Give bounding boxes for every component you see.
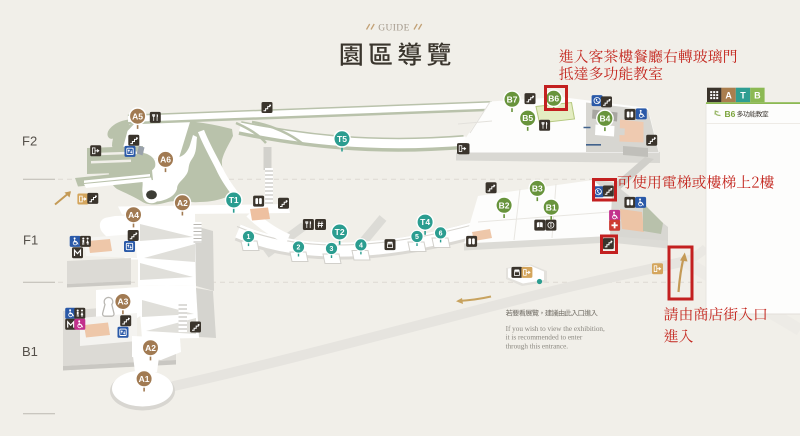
svg-text:4: 4 [359,243,363,250]
svg-text:B6: B6 [725,109,736,119]
svg-text:T4: T4 [420,217,430,227]
svg-text:5: 5 [415,234,419,241]
svg-text:B1: B1 [22,344,38,359]
svg-text:B1: B1 [546,202,557,212]
svg-text:A3: A3 [117,297,128,307]
svg-text:1: 1 [247,234,251,241]
svg-text:T1: T1 [229,195,239,205]
svg-text:A1: A1 [139,374,150,384]
svg-text:6: 6 [439,231,443,238]
svg-text:GUIDE: GUIDE [378,24,410,34]
svg-text:F2: F2 [22,134,37,149]
svg-text:through this entrance.: through this entrance. [506,342,569,350]
svg-text:it is recommended to enter: it is recommended to enter [506,334,583,342]
svg-text:A2: A2 [177,198,188,208]
svg-text:A2: A2 [145,343,156,353]
svg-text:If you wish to view the exhibi: If you wish to view the exhibition, [506,325,605,333]
svg-text:A4: A4 [128,210,139,220]
svg-text:B5: B5 [522,113,533,123]
svg-text:T2: T2 [335,227,345,237]
svg-text:B7: B7 [507,94,518,104]
svg-text:A6: A6 [160,154,171,164]
svg-text:B6: B6 [548,93,559,103]
svg-text:B3: B3 [532,183,543,193]
svg-text:3: 3 [330,246,334,253]
svg-text:F1: F1 [23,233,38,248]
svg-text:A: A [725,91,732,101]
svg-text:2: 2 [297,245,301,252]
svg-text:T5: T5 [337,134,347,144]
svg-text:A5: A5 [132,111,143,121]
svg-text:B2: B2 [499,200,510,210]
svg-text:B4: B4 [599,113,610,123]
svg-text:B: B [754,91,761,101]
svg-text:T: T [740,91,746,101]
